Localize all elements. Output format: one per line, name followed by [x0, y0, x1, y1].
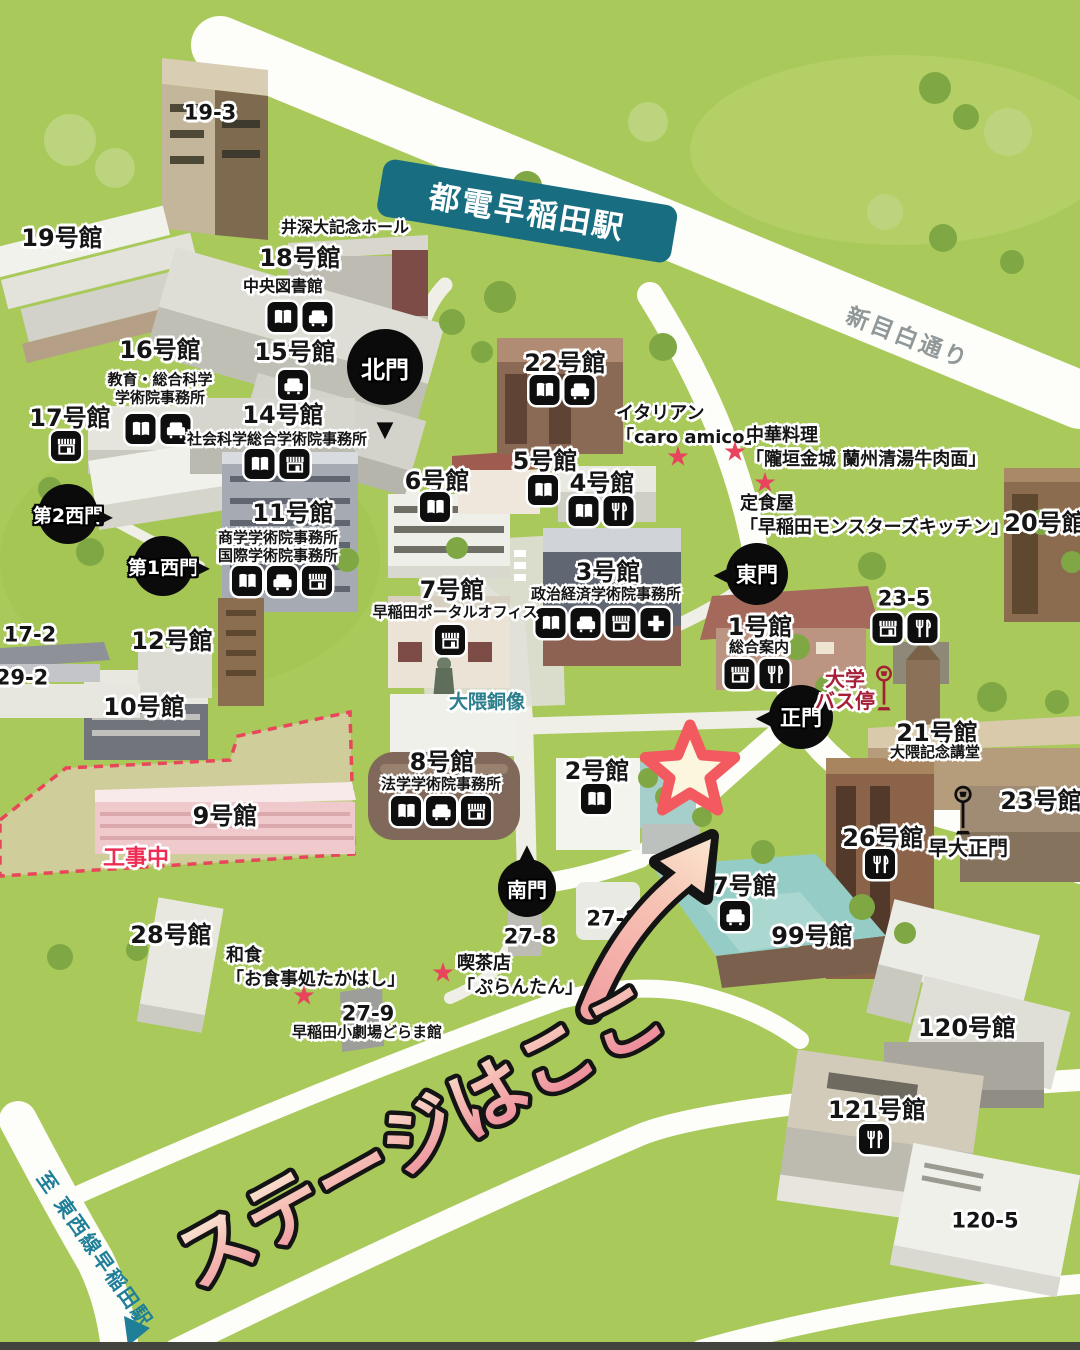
label-11-sub: 商学学術院事務所国際学術院事務所 [218, 529, 338, 564]
bus-stop-icon [951, 785, 976, 839]
label-7: 7号館 [420, 576, 485, 604]
label-4: 4号館 [570, 469, 635, 497]
gate-west1: 第1西門 [133, 536, 193, 596]
label-3-sub: 政治経済学術院事務所 [531, 586, 681, 604]
label-5: 5号館 [513, 447, 578, 475]
icons-17 [51, 431, 81, 461]
label-10: 10号館 [103, 693, 184, 721]
map-bottom-edge [0, 1342, 1080, 1350]
restaurant-teishoku: 定食屋「早稲田モンスターズキッチン」 [740, 492, 1009, 540]
building-19-3 [162, 58, 268, 240]
book-icon [232, 566, 262, 596]
book-icon [268, 302, 298, 332]
label-3: 3号館 [576, 558, 641, 586]
label-27: 27号館 [695, 872, 776, 900]
store-icon [461, 796, 491, 826]
store-icon [873, 613, 903, 643]
store-icon [51, 431, 81, 461]
restaurant-star-icon: ★ [292, 981, 316, 1012]
lounge-icon [720, 901, 750, 931]
lounge-icon [303, 302, 333, 332]
gate-main-arrow-icon: ◀ [756, 706, 773, 731]
book-icon [528, 475, 558, 505]
label-12: 12号館 [131, 627, 212, 655]
icons-11 [232, 566, 332, 596]
label-20: 20号館 [1004, 509, 1080, 537]
label-9: 9号館 [193, 802, 258, 830]
label-23-5: 23-5 [878, 587, 931, 612]
label-14: 14号館 [242, 401, 323, 429]
label-26: 26号館 [842, 824, 923, 852]
health-center-icon [641, 608, 671, 638]
label-120: 120号館 [918, 1014, 1016, 1042]
label-23: 23号館 [1000, 787, 1080, 815]
store-icon [725, 659, 755, 689]
label-22: 22号館 [524, 349, 605, 377]
icons-2 [581, 784, 611, 814]
label-1: 1号館 [728, 613, 793, 641]
label-121: 121号館 [828, 1096, 926, 1124]
label-18: 18号館 [259, 244, 340, 272]
store-icon [280, 449, 310, 479]
icons-27 [720, 901, 750, 931]
building-12 [138, 648, 212, 698]
book-icon [530, 375, 560, 405]
label-7-sub: 早稲田ポータルオフィス [373, 604, 538, 622]
book-icon [420, 492, 450, 522]
label-17: 17号館 [29, 404, 110, 432]
restaurant-cafe: 喫茶店「ぷらんたん」 [457, 952, 583, 1000]
gate-north: 北門 [347, 329, 423, 405]
label-6: 6号館 [405, 467, 470, 495]
label-18-sub: 中央図書館 [243, 278, 323, 297]
book-icon [391, 796, 421, 826]
store-icon [435, 625, 465, 655]
store-icon [606, 608, 636, 638]
book-icon [569, 496, 599, 526]
dining-icon [908, 613, 938, 643]
gate-north-arrow-icon: ▼ [377, 418, 394, 443]
lounge-icon [426, 796, 456, 826]
book-icon [536, 608, 566, 638]
label-8: 8号館 [410, 748, 475, 776]
label-ibuka-hall: 井深大記念ホール [281, 219, 409, 238]
label-11: 11号館 [252, 499, 333, 527]
construction-label: 工事中 [103, 846, 169, 872]
icons-3 [536, 608, 671, 638]
label-14-sub: 社会科学総合学術院事務所 [187, 431, 367, 449]
gate-west2: 第2西門 [38, 484, 98, 544]
lounge-icon [571, 608, 601, 638]
label-27-10: 27-10 [586, 907, 653, 932]
icons-23-5 [873, 613, 938, 643]
label-21-sub: 大隈記念講堂 [890, 744, 980, 762]
icons-1 [725, 659, 790, 689]
restaurant-star-icon: ★ [723, 437, 747, 468]
icons-5 [528, 475, 558, 505]
lounge-icon [278, 370, 308, 400]
store-icon [302, 566, 332, 596]
label-27-9-sub: 早稲田小劇場どらま館 [292, 1024, 442, 1042]
label-16: 16号館 [119, 336, 200, 364]
label-17-2: 17-2 [4, 623, 57, 648]
icons-7 [435, 625, 465, 655]
map-artwork: 都電早稲田駅 新目白通り 至 東西線早稲田駅 [0, 0, 1080, 1350]
book-icon [581, 784, 611, 814]
gate-south: 南門 [498, 859, 556, 917]
label-1-sub: 総合案内 [729, 639, 789, 657]
okuma-statue-label: 大隈銅像 [449, 691, 525, 713]
icons-18 [268, 302, 333, 332]
gate-west1-arrow-icon: ▶ [196, 558, 210, 579]
lounge-icon [267, 566, 297, 596]
restaurant-star-icon: ★ [666, 442, 690, 473]
icons-15 [278, 370, 308, 400]
restaurant-star-icon: ★ [431, 958, 455, 989]
dining-icon [760, 659, 790, 689]
dining-icon [865, 849, 895, 879]
label-15: 15号館 [254, 338, 335, 366]
label-120-5: 120-5 [951, 1209, 1018, 1234]
book-icon [245, 449, 275, 479]
label-99: 99号館 [771, 922, 852, 950]
university-bus-stop-label: 大学バス停 [815, 668, 875, 712]
icons-121 [859, 1124, 889, 1154]
label-16-sub: 教育・総合科学学術院事務所 [107, 371, 212, 406]
icons-8 [391, 796, 491, 826]
gate-east: 東門 [726, 543, 788, 605]
label-29-2: 29-2 [0, 666, 48, 691]
gate-south-arrow-icon: ▲ [519, 841, 536, 866]
gate-east-arrow-icon: ◀ [714, 563, 731, 588]
label-27-8: 27-8 [504, 925, 557, 950]
icons-26 [865, 849, 895, 879]
building-20 [1004, 468, 1080, 622]
label-19-3: 19-3 [184, 101, 237, 126]
label-28: 28号館 [130, 921, 211, 949]
icons-6 [420, 492, 450, 522]
restaurant-chinese: 中華料理「隴垣金城 蘭州清湯牛肉面」 [746, 424, 986, 472]
waseda-main-gate-label: 早大正門 [928, 837, 1008, 861]
icons-4 [569, 496, 634, 526]
label-8-sub: 法学学術院事務所 [381, 776, 501, 794]
book-icon [126, 414, 156, 444]
icons-16 [126, 414, 191, 444]
label-2: 2号館 [565, 757, 630, 785]
lounge-icon [565, 375, 595, 405]
campus-map: 都電早稲田駅 新目白通り 至 東西線早稲田駅 19-3 19号館 井深大記念ホー… [0, 0, 1080, 1350]
gate-west2-arrow-icon: ▶ [99, 507, 113, 528]
icons-14 [245, 449, 310, 479]
dining-icon [859, 1124, 889, 1154]
dining-icon [604, 496, 634, 526]
label-19: 19号館 [21, 224, 102, 252]
icons-22 [530, 375, 595, 405]
bus-stop-icon [873, 665, 896, 715]
